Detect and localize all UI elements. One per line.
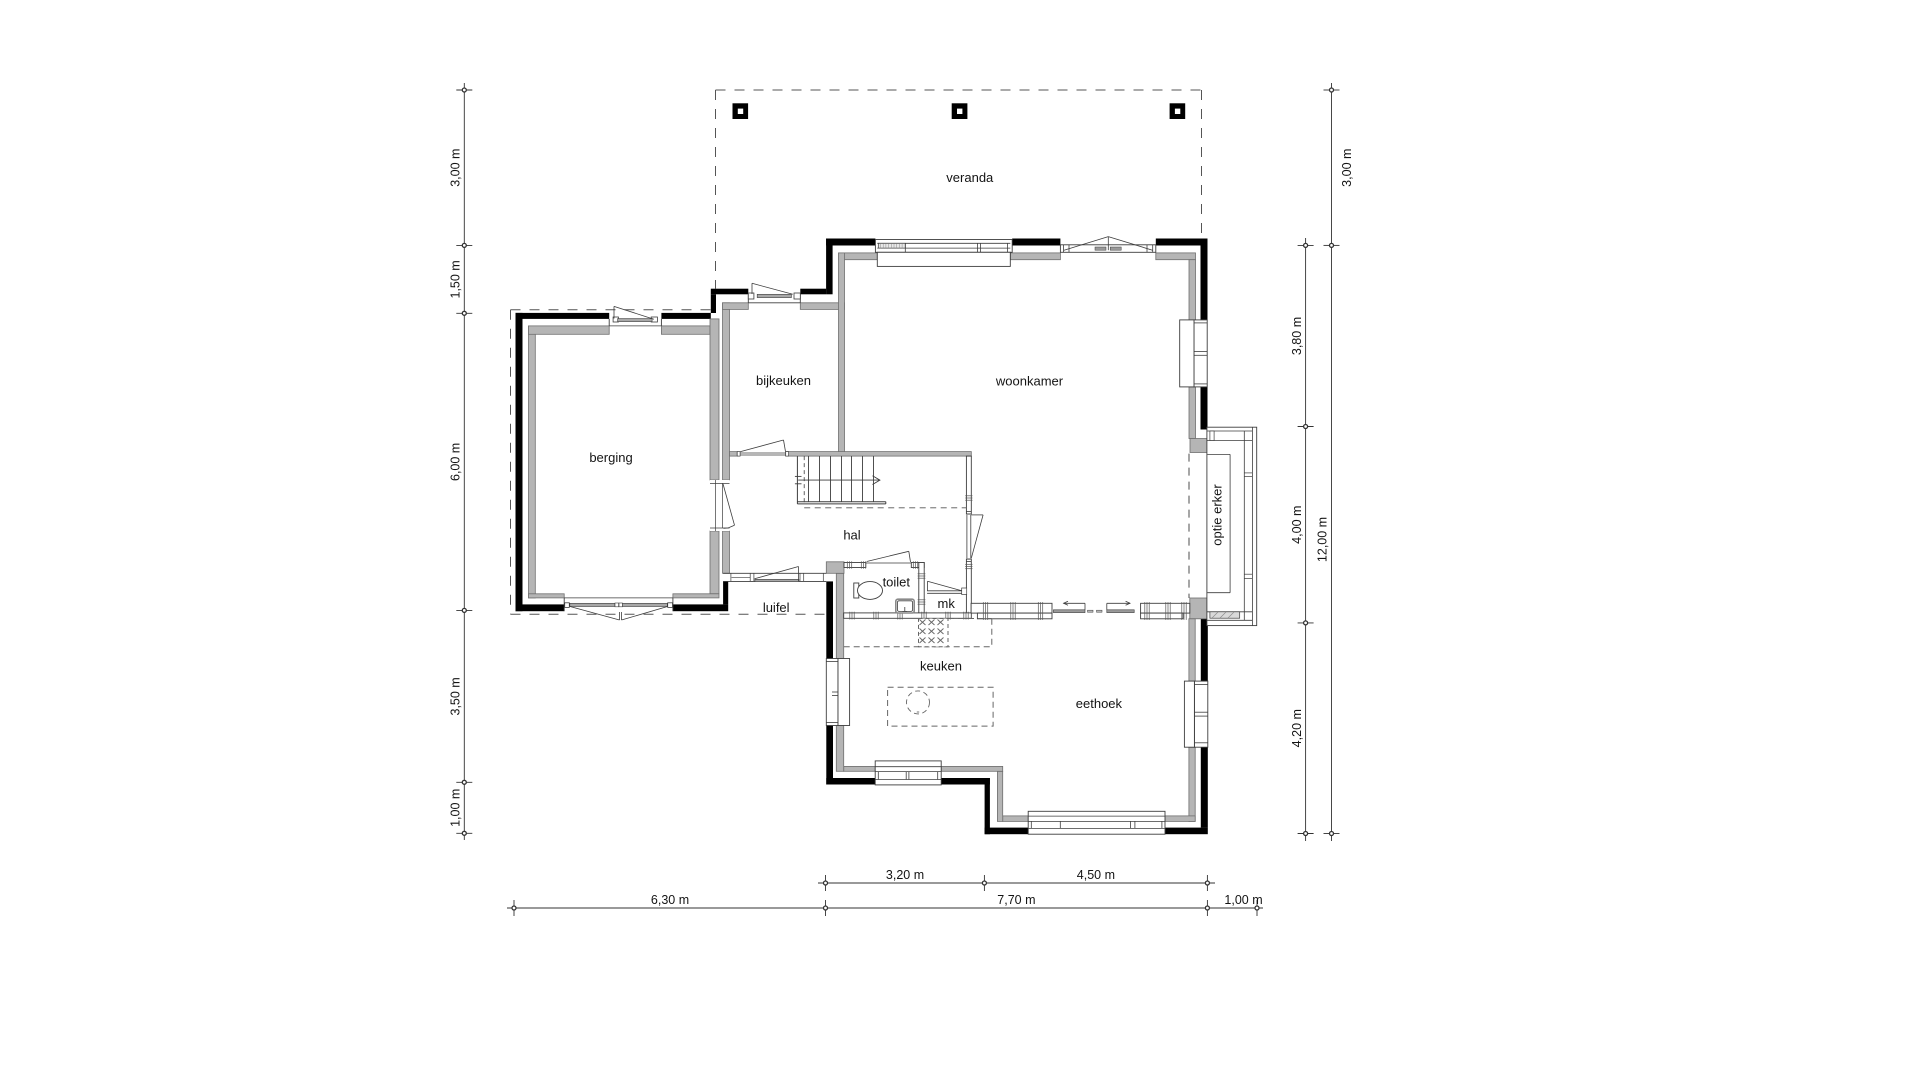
svg-text:7,70 m: 7,70 m xyxy=(997,893,1035,907)
svg-text:eethoek: eethoek xyxy=(1076,696,1123,711)
svg-text:6,00 m: 6,00 m xyxy=(449,443,463,481)
svg-text:keuken: keuken xyxy=(920,659,962,674)
svg-text:toilet: toilet xyxy=(883,574,911,589)
svg-text:mk: mk xyxy=(938,596,956,611)
svg-text:1,00 m: 1,00 m xyxy=(449,789,463,827)
svg-text:woonkamer: woonkamer xyxy=(995,373,1064,388)
svg-text:bijkeuken: bijkeuken xyxy=(756,373,811,388)
svg-text:hal: hal xyxy=(843,528,860,543)
svg-text:4,50 m: 4,50 m xyxy=(1077,868,1115,882)
svg-text:4,00 m: 4,00 m xyxy=(1290,506,1304,544)
svg-text:berging: berging xyxy=(589,450,632,465)
svg-text:1,00 m: 1,00 m xyxy=(1224,893,1262,907)
svg-text:veranda: veranda xyxy=(946,170,994,185)
svg-text:3,80 m: 3,80 m xyxy=(1290,317,1304,355)
svg-text:12,00 m: 12,00 m xyxy=(1316,517,1330,562)
svg-text:3,00 m: 3,00 m xyxy=(449,149,463,187)
svg-text:3,00 m: 3,00 m xyxy=(1340,149,1354,187)
svg-text:optie erker: optie erker xyxy=(1210,484,1225,546)
svg-text:6,30 m: 6,30 m xyxy=(651,893,689,907)
svg-text:4,20 m: 4,20 m xyxy=(1290,709,1304,747)
svg-text:luifel: luifel xyxy=(763,600,790,615)
svg-text:3,20 m: 3,20 m xyxy=(886,868,924,882)
svg-text:3,50 m: 3,50 m xyxy=(449,677,463,715)
svg-text:1,50 m: 1,50 m xyxy=(449,260,463,298)
